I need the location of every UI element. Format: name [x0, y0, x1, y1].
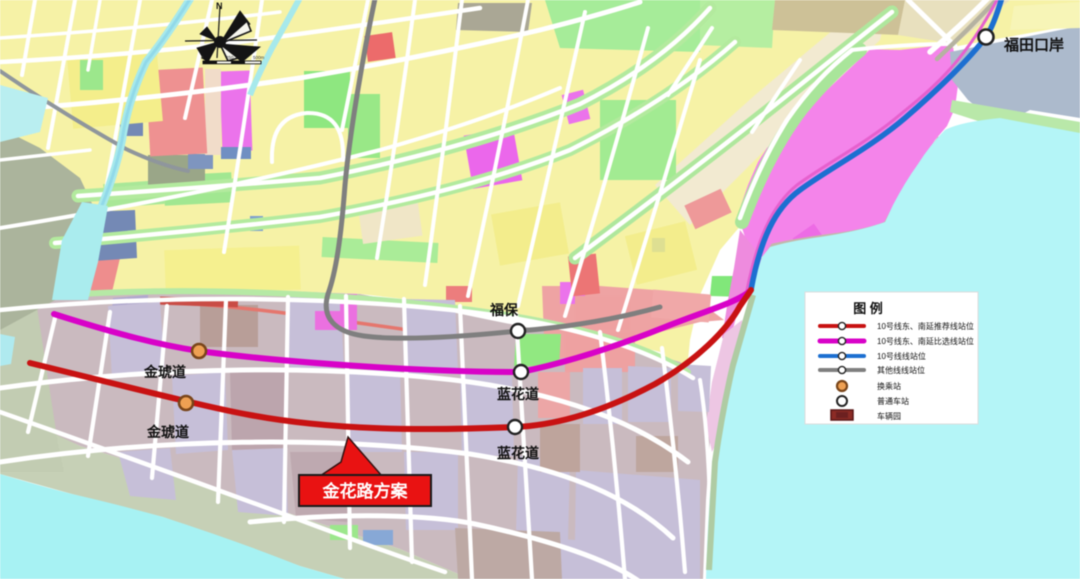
svg-text:蓝花道: 蓝花道 [497, 386, 539, 402]
svg-text:250: 250 [226, 55, 234, 60]
svg-text:福田口岸: 福田口岸 [1003, 36, 1064, 54]
svg-text:换乘站: 换乘站 [877, 381, 901, 391]
svg-text:10号线东、南延推荐线站位: 10号线东、南延推荐线站位 [877, 321, 974, 331]
svg-text:500m: 500m [253, 55, 265, 60]
svg-text:蓝花道: 蓝花道 [497, 445, 539, 461]
svg-text:图 例: 图 例 [853, 301, 883, 316]
svg-text:金琥道: 金琥道 [143, 364, 186, 380]
svg-text:N: N [216, 1, 223, 11]
svg-text:车辆园: 车辆园 [877, 411, 901, 421]
svg-text:10号线线站位: 10号线线站位 [877, 351, 926, 361]
svg-text:10号线东、南延比选线站位: 10号线东、南延比选线站位 [877, 336, 974, 346]
svg-text:福保: 福保 [489, 302, 519, 318]
svg-text:其他线线站位: 其他线线站位 [877, 365, 925, 375]
svg-text:金琥道: 金琥道 [146, 424, 189, 440]
svg-text:普通车站: 普通车站 [877, 396, 909, 406]
svg-text:金花路方案: 金花路方案 [322, 481, 409, 501]
